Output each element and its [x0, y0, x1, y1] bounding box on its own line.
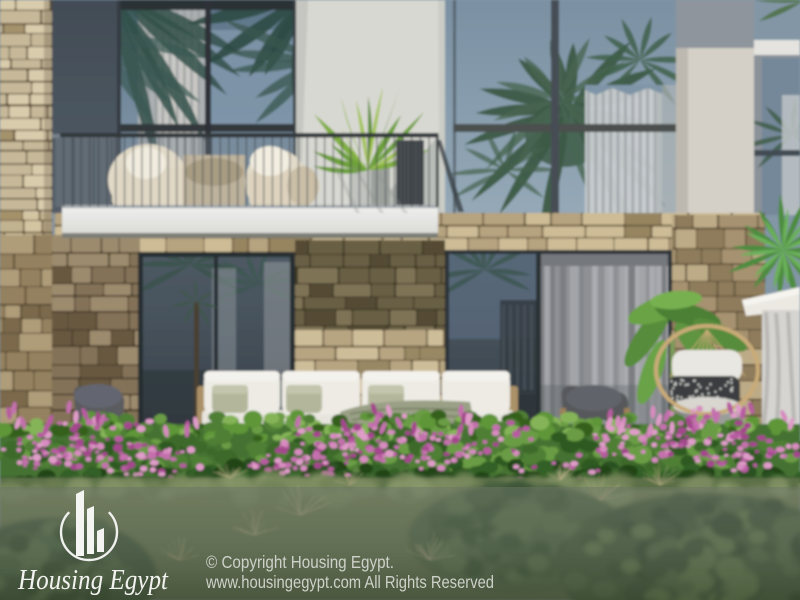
svg-text:© Copyright Housing Egypt.: © Copyright Housing Egypt.: [206, 552, 394, 572]
svg-text:www.housingegypt.com All Right: www.housingegypt.com All Rights Reserved: [205, 572, 494, 592]
svg-text:Housing Egypt: Housing Egypt: [17, 564, 169, 596]
